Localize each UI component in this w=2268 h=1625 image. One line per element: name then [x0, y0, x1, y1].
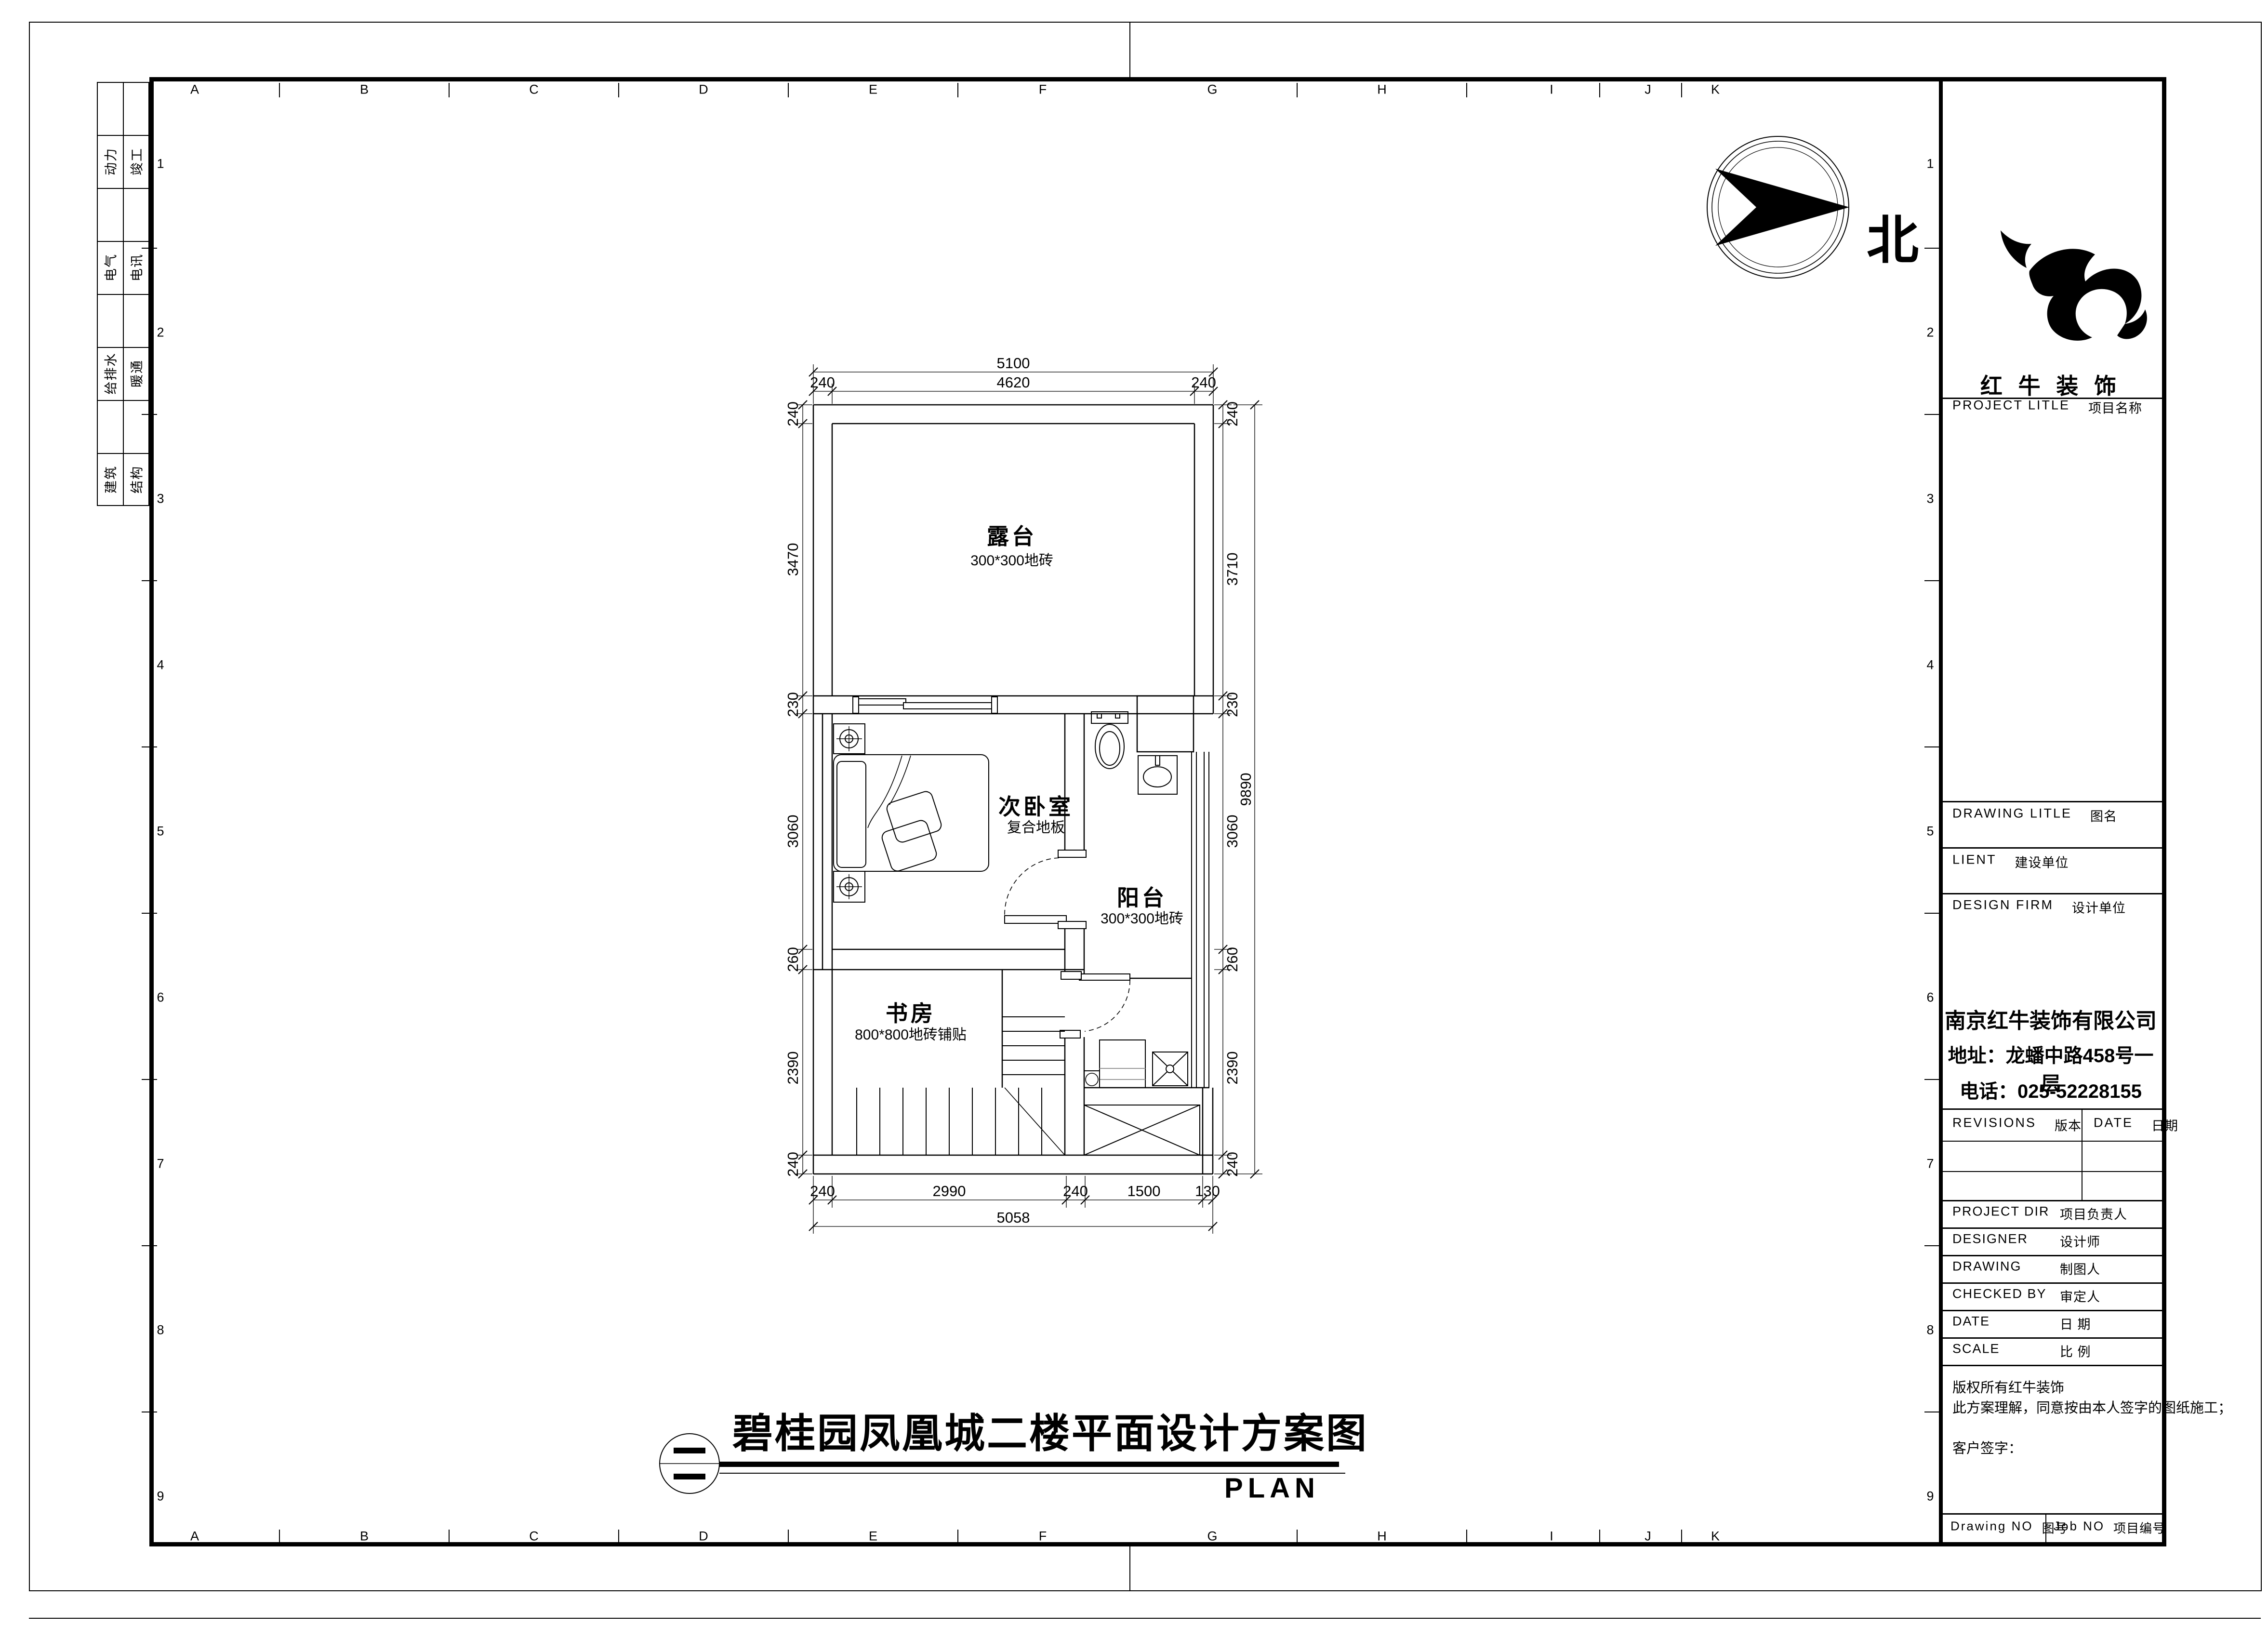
dim-left: 260 — [784, 947, 802, 972]
tb-design-firm-en: DESIGN FIRM — [1952, 898, 2054, 917]
toilet — [1091, 712, 1128, 769]
dim-top: 240 — [810, 374, 835, 391]
tb-line — [1939, 1141, 2162, 1142]
tb-date-col-zh: 日期 — [2151, 1116, 2178, 1134]
tb-client-zh: 建设单位 — [2015, 852, 2069, 871]
tb-project-dir-zh: 项目负责人 — [2060, 1204, 2127, 1223]
tb-job-no-en: Job NO — [2054, 1519, 2105, 1537]
tb-scale-row: SCALE 比 例 — [1952, 1342, 2091, 1360]
tb-drawing-person: DRAWING 制图人 — [1952, 1259, 2100, 1278]
dim-right-total: 9890 — [1237, 773, 1255, 806]
tb-design-firm-zh: 设计单位 — [2072, 898, 2126, 917]
tb-checked-by-zh: 审定人 — [2060, 1287, 2100, 1305]
dim-right: 3710 — [1224, 553, 1241, 586]
tb-line — [1939, 1255, 2162, 1256]
dim-bottom: 2990 — [933, 1183, 966, 1200]
tb-line — [1939, 1282, 2162, 1284]
plan-label: PLAN — [1224, 1472, 1320, 1505]
room-finish-study: 800*800地砖铺贴 — [855, 1023, 967, 1044]
tb-copyright-2: 此方案理解，同意按由本人签字的图纸施工； — [1952, 1397, 2232, 1417]
tb-designer-en: DESIGNER — [1952, 1232, 2042, 1251]
tb-project-title-zh: 项目名称 — [2088, 398, 2142, 417]
dim-right: 3060 — [1224, 815, 1241, 848]
dim-right: 260 — [1224, 947, 1241, 972]
dim-bottom: 1500 — [1127, 1183, 1161, 1200]
tb-line — [1939, 1513, 2162, 1515]
dim-left: 240 — [784, 401, 802, 426]
tb-designer-zh: 设计师 — [2060, 1232, 2100, 1251]
tb-scale-row-en: SCALE — [1952, 1342, 2042, 1360]
tb-client-en: LIENT — [1952, 852, 1997, 871]
floor-void — [1084, 1105, 1200, 1155]
tb-line — [1939, 801, 2162, 802]
drawing-title-text: 碧桂园凤凰城二楼平面设计方案图 — [732, 1401, 1368, 1460]
dim-right: 230 — [1224, 692, 1241, 717]
tb-client: LIENT 建设单位 — [1952, 852, 2069, 871]
drawing-sheet: 动力 竣工 电气 电讯 给排水 暖通 建筑 结构 A B C D E F G H… — [0, 0, 2268, 1625]
tb-date-row-zh: 日 期 — [2060, 1314, 2091, 1333]
washer-and-utility — [1084, 1040, 1145, 1088]
bedroom-window — [853, 697, 997, 713]
bed — [834, 755, 989, 873]
tb-line — [1939, 1171, 2162, 1172]
tb-drawing-no: Drawing NO 图号 — [1950, 1519, 2068, 1537]
dim-left: 230 — [784, 692, 802, 717]
tb-job-no-zh: 项目编号 — [2113, 1519, 2165, 1537]
dim-left: 2390 — [784, 1052, 802, 1085]
room-finish-balcony: 300*300地砖 — [1101, 906, 1183, 928]
room-label-terrace: 露台 — [987, 519, 1037, 551]
tb-drawing-no-en: Drawing NO — [1950, 1519, 2033, 1537]
dim-bottom: 240 — [810, 1183, 835, 1200]
dim-top: 4620 — [997, 374, 1030, 391]
tb-drawing-person-en: DRAWING — [1952, 1259, 2042, 1278]
room-finish-bedroom: 复合地板 — [1007, 815, 1065, 837]
tb-date-col-en: DATE — [2094, 1116, 2133, 1134]
tb-line — [1939, 847, 2162, 849]
tb-revisions-en: REVISIONS — [1952, 1116, 2036, 1134]
tb-line — [1939, 1227, 2162, 1229]
tb-checked-by: CHECKED BY 审定人 — [1952, 1287, 2100, 1305]
tb-project-dir-en: PROJECT DIR — [1952, 1204, 2042, 1223]
tb-revisions-zh: 版本 — [2055, 1116, 2082, 1134]
tb-vline-revisions — [2082, 1108, 2082, 1200]
tb-drawing-title-zh: 图名 — [2090, 806, 2117, 825]
tb-copyright-1: 版权所有红牛装饰 — [1952, 1376, 2064, 1397]
tb-project-title-en: PROJECT LITLE — [1952, 398, 2070, 417]
tb-line — [1939, 1108, 2162, 1110]
tb-job-no: Job NO 项目编号 — [2054, 1519, 2165, 1537]
plan-vector-layer — [0, 0, 2268, 1625]
sink — [1138, 756, 1177, 794]
tb-designer: DESIGNER 设计师 — [1952, 1232, 2100, 1251]
dim-bottom: 130 — [1195, 1183, 1220, 1200]
dim-top: 240 — [1191, 374, 1216, 391]
company-name: 南京红牛装饰有限公司 — [1939, 1003, 2162, 1034]
logo-text: 红 牛 装 饰 — [1939, 369, 2162, 400]
tb-drawing-person-zh: 制图人 — [2060, 1259, 2100, 1278]
tb-line — [1939, 1200, 2162, 1201]
north-label: 北 — [1867, 199, 1919, 274]
tb-line — [1939, 1365, 2162, 1366]
dim-bottom: 240 — [1063, 1183, 1088, 1200]
dim-right: 2390 — [1224, 1052, 1241, 1085]
room-finish-terrace: 300*300地砖 — [970, 548, 1053, 570]
tb-sign-label: 客户签字： — [1952, 1437, 2022, 1457]
tb-revisions: REVISIONS 版本 — [1952, 1116, 2082, 1134]
dim-top-total: 5100 — [997, 355, 1030, 372]
dim-left: 3060 — [784, 815, 802, 848]
tb-line — [1939, 893, 2162, 894]
dim-right: 240 — [1224, 1152, 1241, 1177]
dim-bottom-total: 5058 — [997, 1209, 1030, 1226]
tb-line — [1939, 1310, 2162, 1311]
doors — [1005, 850, 1130, 1038]
nightstands — [834, 724, 865, 902]
tb-project-title: PROJECT LITLE 项目名称 — [1952, 398, 2142, 417]
shower-drain — [1153, 1052, 1188, 1086]
tb-date-col: DATE 日期 — [2094, 1116, 2178, 1134]
tb-date-row: DATE 日 期 — [1952, 1314, 2091, 1333]
tb-checked-by-en: CHECKED BY — [1952, 1287, 2042, 1305]
tb-drawing-title-en: DRAWING LITLE — [1952, 806, 2072, 825]
dim-right: 240 — [1224, 401, 1241, 426]
company-logo-mark — [2001, 230, 2147, 341]
tb-drawing-title: DRAWING LITLE 图名 — [1952, 806, 2117, 825]
tb-project-dir: PROJECT DIR 项目负责人 — [1952, 1204, 2127, 1223]
tb-line — [1939, 1337, 2162, 1339]
north-arrow-icon — [1707, 136, 1849, 278]
tb-design-firm: DESIGN FIRM 设计单位 — [1952, 898, 2126, 917]
tb-date-row-en: DATE — [1952, 1314, 2042, 1333]
company-phone: 电话：025-52228155 — [1939, 1076, 2162, 1104]
balcony-railing — [1192, 752, 1209, 1088]
dim-left: 240 — [784, 1152, 802, 1177]
dim-left: 3470 — [784, 543, 802, 576]
tb-scale-row-zh: 比 例 — [2060, 1342, 2091, 1360]
